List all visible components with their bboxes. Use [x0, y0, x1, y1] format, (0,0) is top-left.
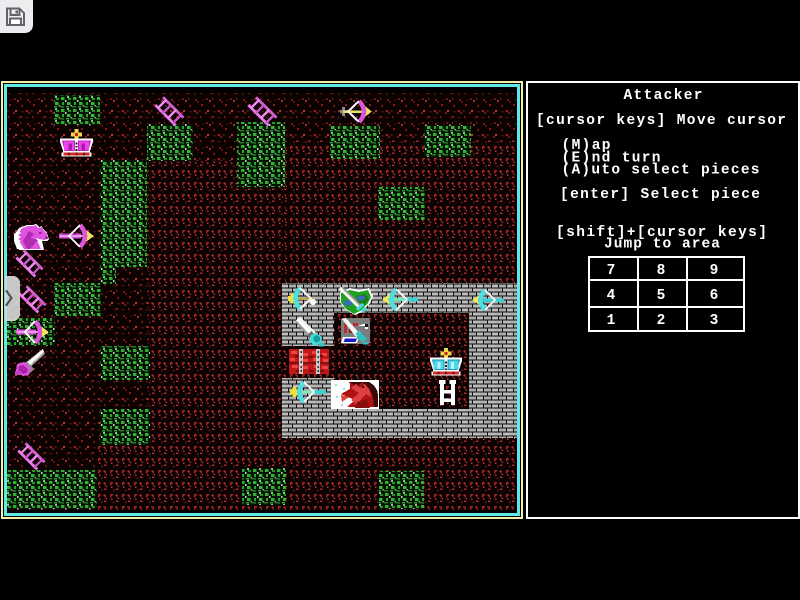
- svg-text:[cursor keys] Move cursor: [cursor keys] Move cursor: [536, 113, 786, 129]
- svg-text:6: 6: [710, 288, 719, 304]
- svg-text:[shift]+[cursor keys]: [shift]+[cursor keys]: [556, 225, 767, 241]
- svg-text:8: 8: [657, 263, 666, 279]
- svg-text:Jump to area: Jump to area: [604, 237, 720, 253]
- svg-text:7: 7: [607, 263, 616, 279]
- svg-text:1: 1: [607, 313, 616, 329]
- svg-text:2: 2: [657, 313, 666, 329]
- svg-text:9: 9: [710, 263, 719, 279]
- svg-text:Attacker: Attacker: [624, 88, 703, 104]
- svg-text:4: 4: [607, 288, 616, 304]
- svg-text:3: 3: [710, 313, 719, 329]
- svg-text:5: 5: [657, 288, 666, 304]
